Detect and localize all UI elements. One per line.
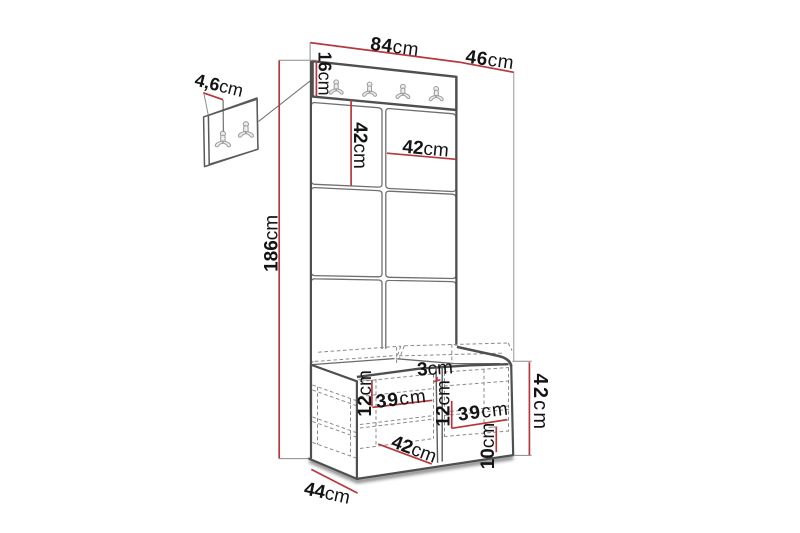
- svg-text:42cm: 42cm: [349, 122, 370, 168]
- svg-text:10cm: 10cm: [478, 423, 499, 469]
- svg-text:16cm: 16cm: [314, 52, 334, 96]
- svg-text:12cm: 12cm: [355, 370, 376, 416]
- svg-text:42cm: 42cm: [402, 137, 450, 162]
- svg-text:186cm: 186cm: [262, 215, 283, 272]
- svg-text:42cm: 42cm: [529, 374, 551, 432]
- svg-text:12cm: 12cm: [433, 380, 454, 426]
- svg-text:3cm: 3cm: [416, 357, 453, 380]
